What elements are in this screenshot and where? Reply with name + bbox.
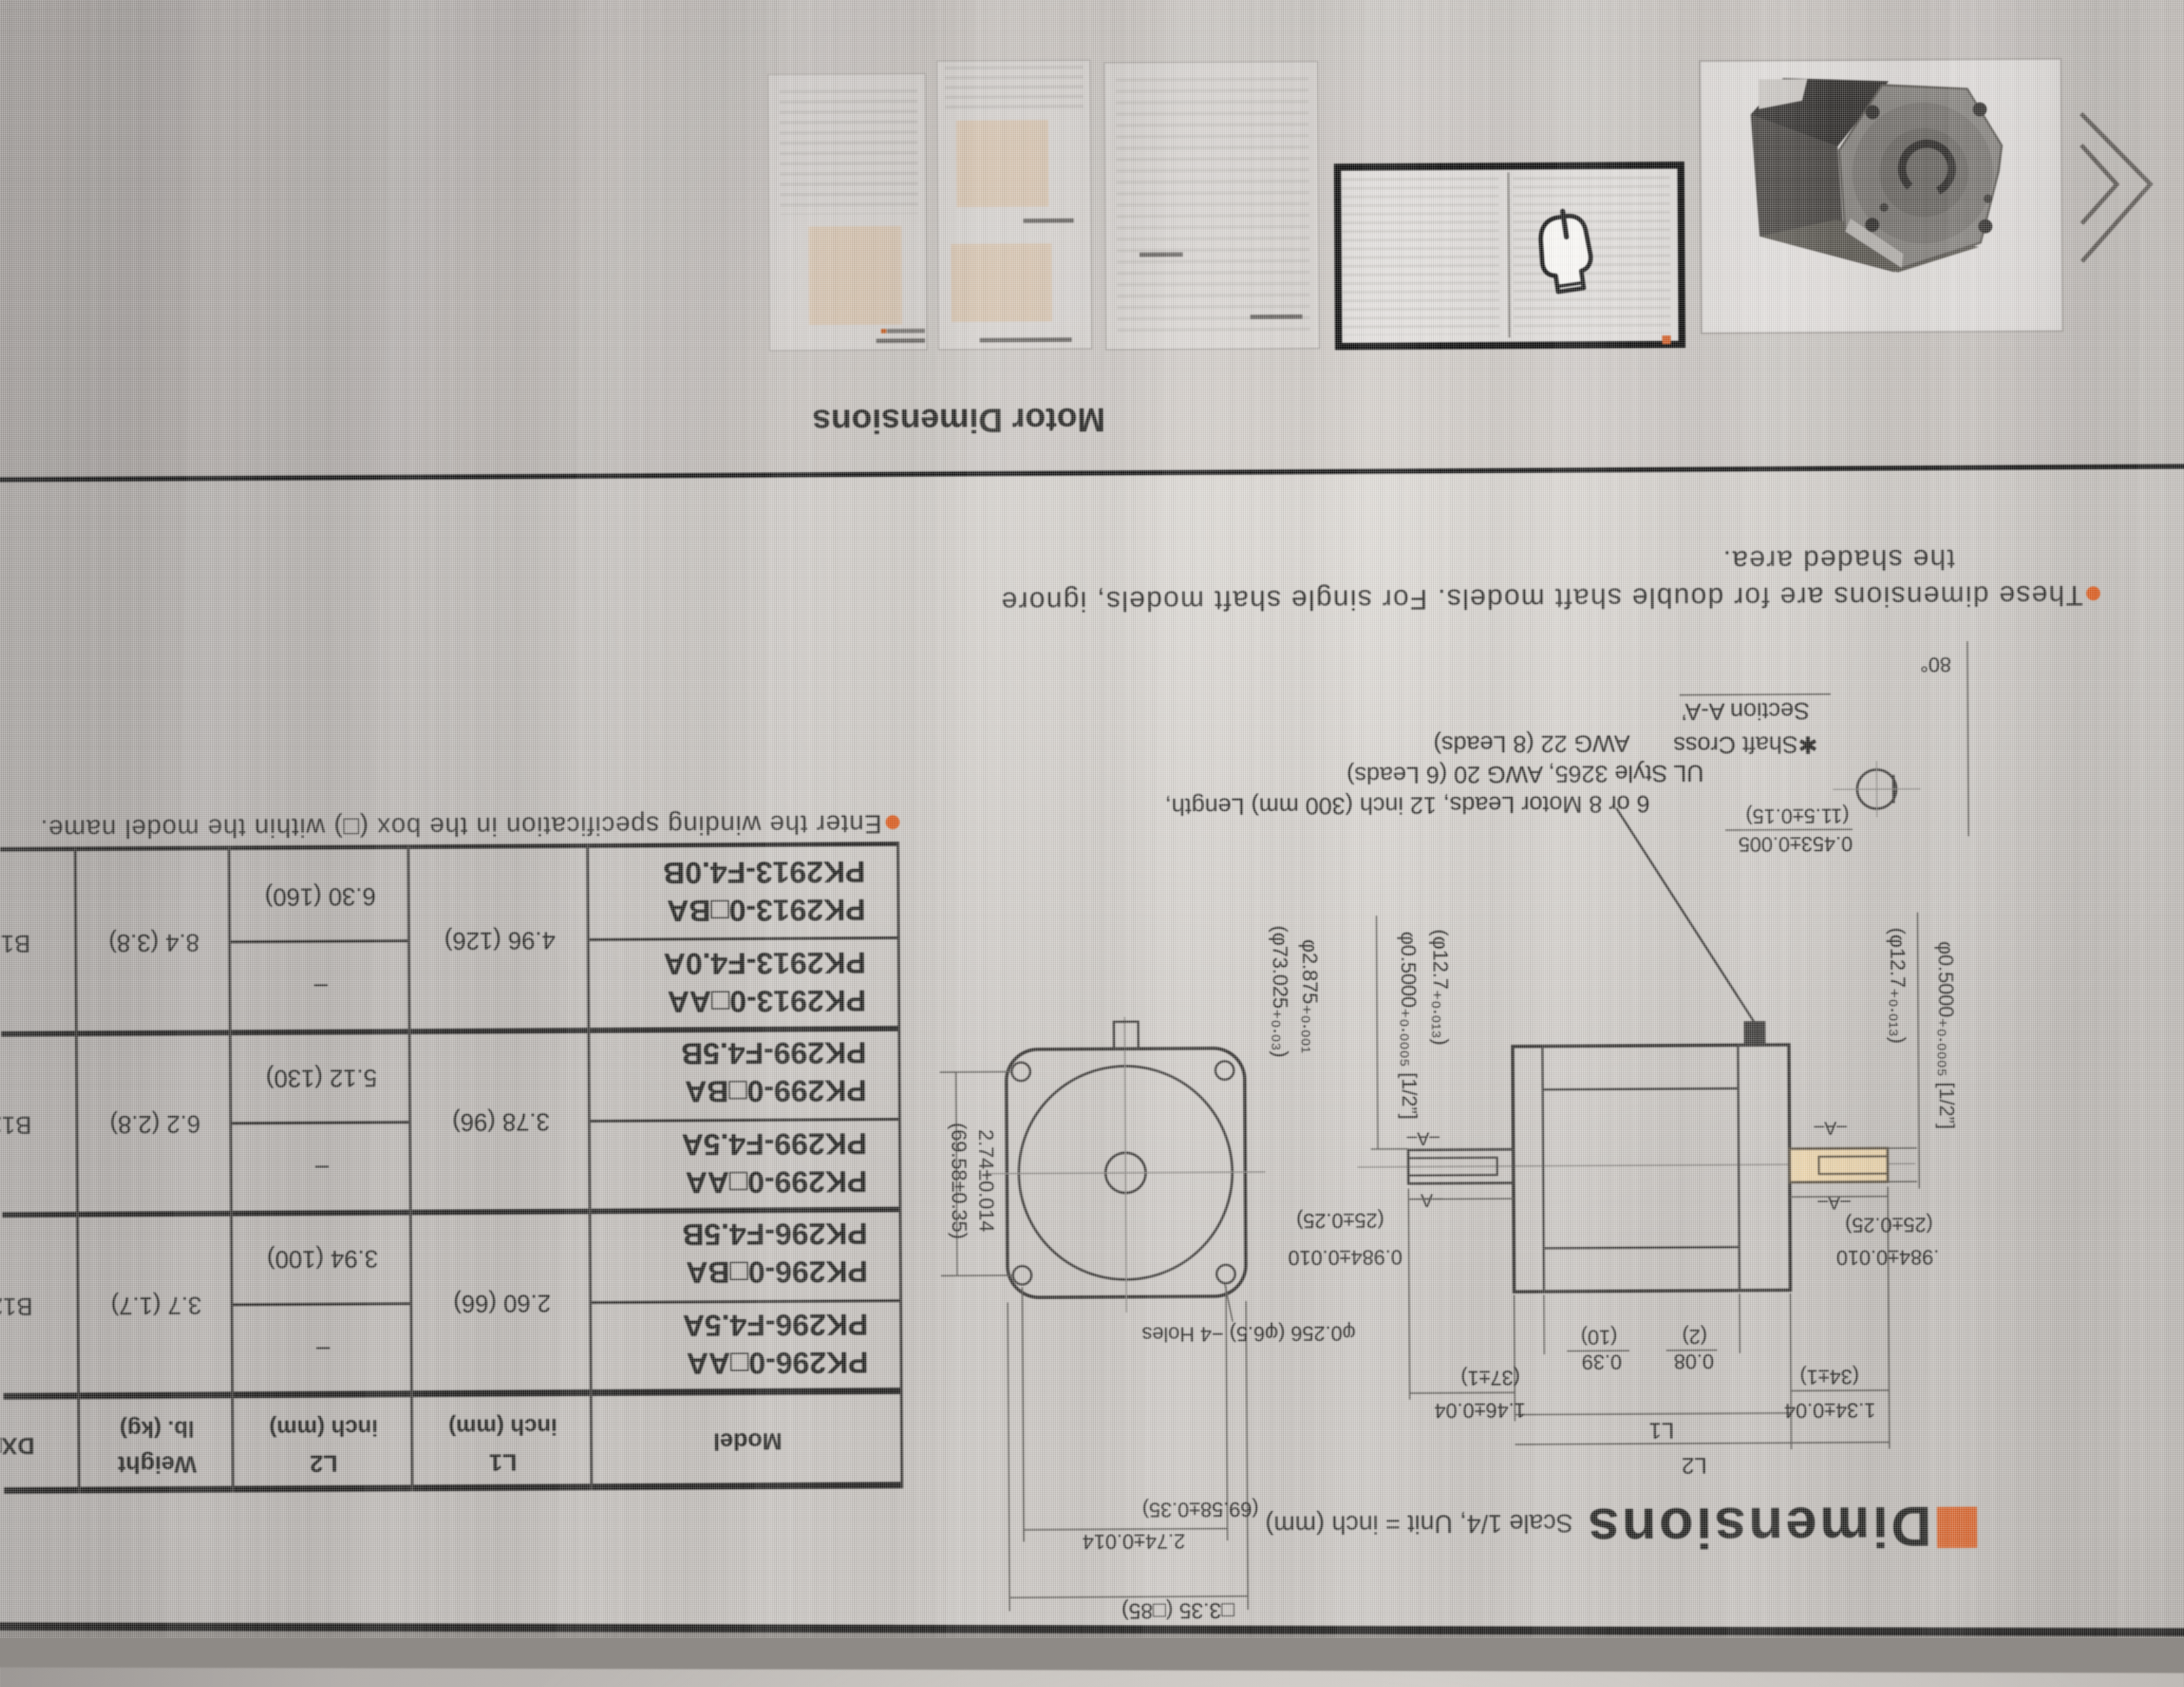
svg-text:0.39: 0.39: [1582, 1350, 1622, 1373]
svg-text:80°: 80°: [1920, 653, 1952, 675]
svg-text:0.984±0.010: 0.984±0.010: [1288, 1246, 1402, 1269]
svg-text:1.46±0.04: 1.46±0.04: [1434, 1398, 1526, 1422]
svg-text:–A–: –A–: [1818, 1192, 1851, 1213]
svg-text:–A–: –A–: [1407, 1128, 1440, 1149]
svg-text:L1: L1: [1649, 1418, 1674, 1443]
svg-text:(34±1): (34±1): [1800, 1365, 1860, 1388]
svg-text:φ0.5000₊₀.₀₀₀₅ [1/2”]: φ0.5000₊₀.₀₀₀₅ [1/2”]: [1934, 941, 1958, 1129]
svg-text:(φ73.025₊₀.₀₃): (φ73.025₊₀.₀₃): [1268, 926, 1291, 1058]
svg-text:–A–: –A–: [1410, 1190, 1444, 1210]
svg-text:(37±1): (37±1): [1461, 1366, 1520, 1389]
svg-text:(φ12.7₊₀.₀₁₃): (φ12.7₊₀.₀₁₃): [1886, 928, 1909, 1044]
svg-text:□3.35 (□85): □3.35 (□85): [1121, 1598, 1234, 1623]
svg-text:1.34±0.04: 1.34±0.04: [1784, 1398, 1876, 1422]
svg-text:0.453±0.005: 0.453±0.005: [1738, 832, 1852, 855]
svg-text:L2: L2: [1681, 1453, 1707, 1478]
svg-text:(φ12.7₊₀.₀₁₃): (φ12.7₊₀.₀₁₃): [1428, 929, 1452, 1046]
svg-text:6 or 8 Motor Leads, 12 inch (3: 6 or 8 Motor Leads, 12 inch (300 mm) Len…: [1165, 791, 1650, 820]
svg-text:UL Style 3265, AWG 20 (6 Leads: UL Style 3265, AWG 20 (6 Leads): [1347, 760, 1704, 789]
svg-text:(11.5±0.15): (11.5±0.15): [1746, 804, 1850, 827]
svg-text:AWG 22 (8 Leads): AWG 22 (8 Leads): [1433, 730, 1630, 758]
svg-text:Section A-A’: Section A-A’: [1681, 698, 1810, 725]
svg-text:–A–: –A–: [1814, 1117, 1847, 1138]
svg-text:φ2.875₊₀.₀₀₁: φ2.875₊₀.₀₀₁: [1298, 939, 1321, 1053]
svg-text:0.08: 0.08: [1674, 1350, 1714, 1372]
svg-text:φ0.5000₊₀.₀₀₀₅ [1/2”]: φ0.5000₊₀.₀₀₀₅ [1/2”]: [1396, 932, 1420, 1119]
svg-text:(25±0.25): (25±0.25): [1296, 1209, 1384, 1232]
svg-text:(69.58±0.35): (69.58±0.35): [1142, 1497, 1258, 1521]
svg-text:(2): (2): [1682, 1325, 1707, 1347]
svg-text:.984±0.010: .984±0.010: [1836, 1245, 1939, 1268]
svg-text:φ0.256 (φ6.5) −4 Holes: φ0.256 (φ6.5) −4 Holes: [1142, 1321, 1356, 1345]
svg-text:2.74±0.014: 2.74±0.014: [974, 1129, 997, 1232]
svg-text:(25±0.25): (25±0.25): [1845, 1213, 1933, 1236]
svg-text:2.74±0.014: 2.74±0.014: [1082, 1529, 1185, 1553]
svg-text:(69.58±0.35): (69.58±0.35): [947, 1123, 970, 1239]
svg-text:(10): (10): [1581, 1325, 1617, 1348]
svg-text:✱Shaft Cross: ✱Shaft Cross: [1673, 731, 1818, 759]
